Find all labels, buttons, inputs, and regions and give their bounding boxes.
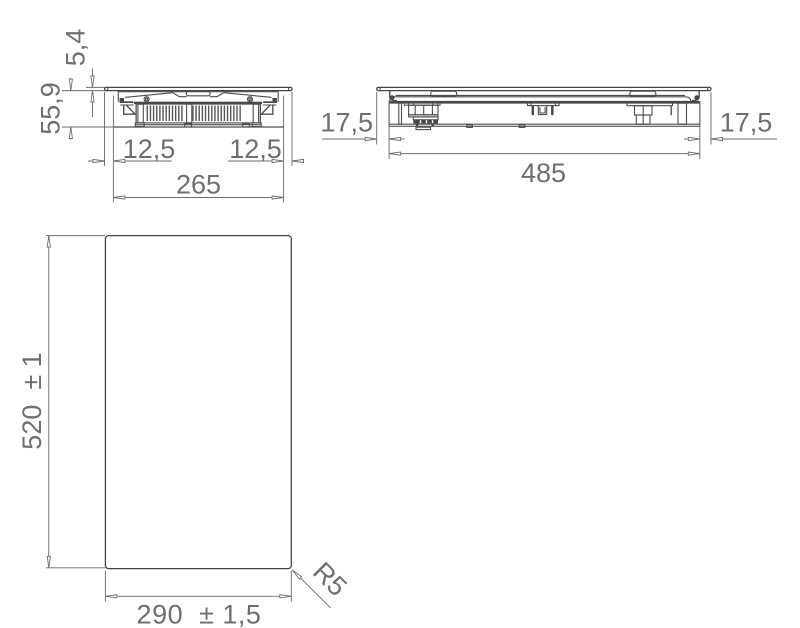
svg-text:485: 485 xyxy=(521,158,566,188)
svg-text:55,9: 55,9 xyxy=(36,82,66,135)
svg-text:17,5: 17,5 xyxy=(321,107,374,137)
svg-text:5,4: 5,4 xyxy=(61,29,91,67)
svg-text:265: 265 xyxy=(176,170,221,200)
svg-text:520 ± 1: 520 ± 1 xyxy=(17,352,47,449)
svg-text:12,5: 12,5 xyxy=(229,134,282,164)
svg-text:17,5: 17,5 xyxy=(720,107,773,137)
svg-text:12,5: 12,5 xyxy=(123,134,176,164)
svg-text:290 ± 1,5: 290 ± 1,5 xyxy=(137,600,262,628)
